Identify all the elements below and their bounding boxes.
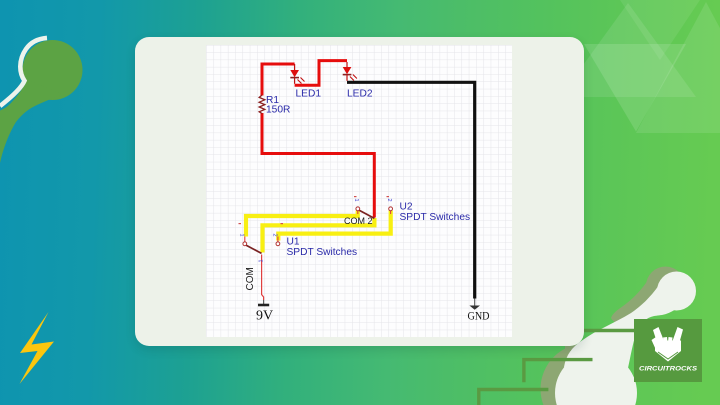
svg-text:150R: 150R	[266, 105, 290, 116]
svg-text:SPDT Switches: SPDT Switches	[400, 212, 471, 223]
svg-text:U1: U1	[287, 237, 300, 248]
svg-text:2: 2	[386, 199, 392, 202]
svg-text:SPDT Switches: SPDT Switches	[287, 247, 358, 258]
svg-text:U2: U2	[400, 202, 413, 213]
svg-text:LED2: LED2	[347, 89, 373, 100]
svg-text:1: 1	[238, 234, 244, 237]
svg-text:COM 2: COM 2	[344, 216, 373, 226]
svg-text:GND: GND	[468, 310, 490, 322]
svg-text:9V: 9V	[256, 309, 273, 324]
svg-text:1: 1	[259, 259, 265, 262]
svg-text:1: 1	[353, 199, 359, 202]
svg-text:2: 2	[271, 234, 277, 237]
svg-text:COM: COM	[245, 267, 256, 290]
svg-text:LED1: LED1	[296, 89, 322, 100]
